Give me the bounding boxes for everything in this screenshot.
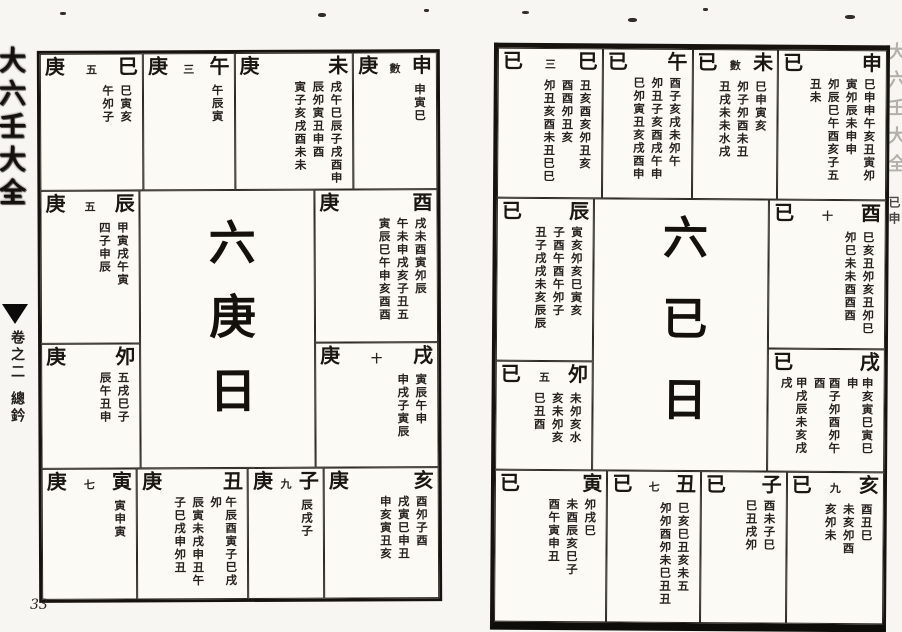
branch-character: 子: [299, 471, 319, 493]
cell-body: 申寅巳: [354, 80, 436, 188]
branch-text-column: 甲戌辰未亥戌戌: [777, 377, 808, 468]
stem-character: 庚: [320, 345, 340, 367]
branch-character: 寅: [582, 473, 602, 495]
branch-text-column: 寅亥夘亥巳寅亥: [567, 226, 583, 357]
branch-text-column: 申戌子寅辰: [394, 373, 409, 463]
branch-text-column: 辰戌子: [298, 499, 313, 595]
branch-character: 亥: [414, 470, 434, 492]
round-number-note: 九: [280, 474, 291, 496]
stem-character: 庚: [358, 55, 378, 77]
branch-text-column: 巳丑戌夘: [742, 499, 758, 619]
cell-shen: 已申巳申申午亥丑寅夘寅夘辰未申申夘辰巳午酉亥子五丑未: [777, 50, 887, 201]
cell-head: 庚酉: [315, 190, 436, 215]
branch-text-column: 子巳戌申夘丑: [171, 496, 186, 595]
cell-yin: 已寅夘戌巳未酉辰亥巳子酉午寅申丑: [494, 470, 608, 623]
cell-body: 巳亥巳丑亥未五夘夘酉夘未巳丑丑: [608, 498, 700, 622]
branch-text-column: 未亥夘酉: [839, 503, 855, 620]
stem-character: 已: [502, 201, 522, 223]
stem-character: 庚: [148, 56, 168, 78]
round-number-note: 三: [183, 59, 194, 81]
branch-text-column: 午夘子: [99, 85, 114, 187]
right-page-bottom-row: 已寅夘戌巳未酉辰亥巳子酉午寅申丑 已七丑巳亥巳丑亥未五夘夘酉夘未巳丑丑 已子酉未…: [494, 470, 884, 625]
branch-text-column: 巳亥巳丑亥未五: [674, 502, 690, 619]
branch-text-column: 申亥寅丑亥: [377, 495, 392, 594]
ink-speck: [424, 9, 429, 12]
cell-head: 庚丑: [138, 469, 247, 493]
cell-head: 庚三午: [144, 54, 234, 81]
stem-character: 已: [774, 203, 794, 225]
branch-text-column: 五戌巳子: [114, 371, 129, 464]
cell-head: 庚十戌: [316, 343, 437, 371]
cell-head: 庚夘: [42, 344, 139, 368]
branch-character: 酉: [861, 203, 881, 225]
cell-body: 巳寅亥午夘子: [41, 81, 143, 189]
stem-character: 已: [612, 473, 632, 495]
stem-character: 庚: [142, 471, 162, 493]
cell-body: 五戌巳子辰午丑申: [42, 368, 140, 468]
branch-character: 午: [209, 56, 229, 78]
left-page-center-cell: 六庚日: [140, 190, 316, 469]
branch-character: 亥: [859, 475, 879, 497]
stem-character: 庚: [329, 471, 349, 493]
branch-text-column: 辰午丑申: [96, 371, 111, 464]
right-page-middle-band: 已辰寅亥夘亥巳寅亥子酉午酉午夘子丑子戌戌未亥辰辰 已五夘未夘亥水亥未夘亥巳丑酉 …: [495, 198, 886, 473]
spine-volume: 卷之二: [6, 330, 26, 381]
stem-character: 已: [783, 53, 803, 75]
cell-head: 庚五巳: [41, 54, 142, 81]
branch-character: 辰: [115, 193, 135, 215]
branch-character: 戌: [860, 353, 880, 375]
cell-mao: 已五夘未夘亥水亥未夘亥巳丑酉: [495, 360, 593, 470]
ink-speck: [628, 18, 637, 22]
branch-text-column: 未夘亥水: [566, 392, 582, 466]
round-number-note: 三: [545, 54, 556, 76]
stem-character: 已: [697, 52, 717, 74]
page-number: 33: [30, 597, 48, 613]
branch-text-column: 酉午寅申丑: [545, 498, 561, 618]
edge-faint-text: 大六壬大全: [883, 42, 902, 182]
cell-head: 庚九子: [249, 469, 323, 496]
cell-head: 已午: [604, 49, 692, 74]
branch-text-column: 戌未酉寅夘辰: [412, 217, 428, 338]
cell-head: 已三巳: [499, 49, 602, 77]
cell-body: 甲寅戌午寅四子申辰: [42, 218, 140, 342]
branch-character: 丑: [676, 474, 696, 496]
branch-text-column: 酉子亥戌未夘午: [665, 77, 681, 195]
cell-head: 庚七寅: [43, 469, 136, 496]
cell-head: 庚未: [235, 54, 352, 79]
round-number-note: 五: [85, 197, 96, 219]
right-page-top-row: 已三巳丑亥酉亥夘丑亥酉酉夘丑亥夘丑亥酉未丑巳巳 已午酉子亥戌未夘午夘丑子亥酉戌午…: [497, 48, 887, 201]
cell-si: 已三巳丑亥酉亥夘丑亥酉酉夘丑亥夘丑亥酉未丑巳巳: [497, 48, 603, 199]
cell-body: 巳申寅亥夘子夘酉未丑丑戌未未水戌: [692, 77, 777, 199]
branch-character: 夘: [115, 346, 135, 368]
cell-wei: 已數未巳申寅亥夘子夘酉未丑丑戌未未水戌: [691, 49, 778, 200]
stem-character: 已: [773, 352, 793, 374]
cell-body: 戌未酉寅夘辰午未申戌亥子丑五寅辰巳午申亥酉酉: [315, 214, 437, 341]
cell-xu: 庚十戌寅辰午申申戌子寅辰: [315, 342, 439, 468]
cell-body: 巳申申午亥丑寅夘寅夘辰未申申夘辰巳午酉亥子五丑未: [778, 75, 886, 200]
left-page-right-column: 庚酉戌未酉寅夘辰午未申戌亥子丑五寅辰巳午申亥酉酉 庚十戌寅辰午申申戌子寅辰: [314, 189, 438, 468]
stem-character: 庚: [319, 193, 339, 215]
cell-head: 已五夘: [497, 361, 592, 389]
left-page-middle-band: 庚五辰甲寅戌午寅四子申辰 庚夘五戌巳子辰午丑申 六庚日 庚酉戌未酉寅夘辰午未申戌…: [40, 189, 438, 469]
cell-body: 丑亥酉亥夘丑亥酉酉夘丑亥夘丑亥酉未丑巳巳: [498, 76, 602, 198]
branch-text-column: 夘子夘酉未丑: [733, 80, 749, 195]
branch-text-column: 辰夘寅丑申酉: [309, 81, 324, 186]
branch-text-column: 甲寅戌午寅: [114, 221, 130, 339]
cell-head: 已數未: [693, 50, 777, 78]
stem-character: 庚: [47, 472, 67, 494]
ink-speck: [318, 13, 326, 17]
round-number-note: 七: [649, 477, 660, 499]
cell-body: 酉未子巳巳丑戌夘: [701, 496, 786, 623]
stem-character: 已: [706, 474, 726, 496]
branch-character: 酉: [412, 192, 432, 214]
cell-body: 午辰寅: [144, 81, 234, 189]
book-scan: 大六壬大全 卷之二 總鈐 庚五巳巳寅亥午夘子 庚三午午辰寅 庚未戌午巳辰子戌酉申…: [0, 0, 902, 630]
branch-character: 午: [667, 52, 687, 74]
round-number-note: 十: [822, 206, 833, 228]
branch-text-column: 丑戌未未水戌: [715, 80, 731, 195]
round-number-note: 五: [539, 367, 550, 389]
right-page-right-column: 已十酉巳亥丑夘亥丑夘巳夘巳未未酉酉酉 已戌申亥寅巳寅巳申酉子夘酉夘午酉甲戌辰未亥…: [767, 200, 886, 473]
right-page-center-cell: 六已日: [592, 198, 769, 471]
branch-text-column: 巳夘寅丑亥戌酉申: [629, 77, 645, 195]
cell-hai: 已九亥酉丑巳未亥夘酉亥夘未: [786, 472, 884, 625]
branch-character: 戌: [413, 345, 433, 367]
branch-text-column: 申寅巳: [411, 83, 426, 185]
branch-character: 申: [412, 55, 432, 77]
branch-character: 巳: [578, 51, 598, 73]
cell-wu: 庚三午午辰寅: [143, 53, 235, 190]
branch-character: 丑: [223, 471, 243, 493]
cell-body: 辰戌子: [249, 496, 323, 598]
spine-section: 總鈐: [6, 391, 26, 425]
cell-head: 已七丑: [608, 471, 700, 499]
stem-character: 庚: [45, 194, 65, 216]
left-page-bottom-row: 庚七寅寅申寅 庚丑午辰酉寅子巳戌夘辰寅未戌申丑午子巳戌申夘丑 庚九子辰戌子 庚亥…: [42, 467, 440, 600]
branch-text-column: 寅辰午申: [412, 373, 427, 463]
cell-body: 未夘亥水亥未夘亥巳丑酉: [496, 388, 592, 469]
stem-character: 已: [503, 51, 523, 73]
branch-text-column: 戌寅巳申丑: [395, 495, 410, 594]
edge-dark-text: 已申: [886, 196, 902, 228]
branch-text-column: 亥未夘亥: [548, 392, 564, 466]
branch-text-column: 酉丑巳: [857, 503, 873, 620]
branch-text-column: 夘丑子亥酉戌午申: [647, 77, 663, 195]
cell-you: 庚酉戌未酉寅夘辰午未申戌亥子丑五寅辰巳午申亥酉酉: [314, 189, 438, 342]
cell-chen: 已辰寅亥夘亥巳寅亥子酉午酉午夘子丑子戌戌未亥辰辰: [496, 198, 594, 361]
cell-head: 庚亥: [325, 468, 438, 492]
branch-text-column: 巳申寅亥: [751, 80, 767, 195]
branch-text-column: 未酉辰亥巳子: [563, 498, 579, 618]
cell-body: 酉夘子酉戌寅巳申丑申亥寅丑亥: [325, 492, 438, 597]
branch-text-column: 夘夘酉夘未巳丑丑: [656, 502, 672, 619]
left-page: 庚五巳巳寅亥午夘子 庚三午午辰寅 庚未戌午巳辰子戌酉申辰夘寅丑申酉寅子亥戌酉未未…: [37, 49, 442, 603]
round-number-note: 十: [371, 348, 382, 370]
branch-text-column: 辰寅未戌申丑午: [189, 496, 204, 595]
branch-character: 未: [328, 56, 348, 78]
ink-speck: [522, 11, 529, 14]
branch-text-column: 巳亥丑夘亥丑夘巳: [859, 231, 875, 346]
round-number-note: 五: [86, 60, 97, 82]
branch-character: 子: [762, 475, 782, 497]
branch-text-column: 酉未子巳: [760, 499, 776, 619]
cell-head: 已十酉: [770, 201, 885, 229]
cell-head: 已申: [779, 51, 886, 76]
spine-title: 大六壬大全: [0, 46, 30, 296]
ink-speck: [60, 12, 66, 15]
cell-shen: 庚數申申寅巳: [353, 52, 437, 189]
branch-text-column: 寅辰巳午申亥酉酉: [376, 217, 392, 338]
branch-character: 寅: [112, 471, 132, 493]
branch-text-column: 午辰酉寅子巳戌夘: [207, 496, 237, 595]
round-number-note: 數: [389, 58, 400, 80]
branch-text-column: 四子申辰: [96, 222, 112, 340]
branch-text-column: 寅申寅: [111, 499, 126, 595]
ink-speck: [703, 8, 708, 11]
cell-chou: 已七丑巳亥巳丑亥未五夘夘酉夘未巳丑丑: [606, 470, 700, 623]
branch-text-column: 夘戌巳: [581, 498, 597, 618]
cell-head: 已寅: [496, 471, 607, 496]
stem-character: 已: [608, 51, 628, 73]
cell-chen: 庚五辰甲寅戌午寅四子申辰: [40, 190, 140, 343]
stem-character: 庚: [253, 471, 273, 493]
branch-text-column: 午未申戌亥子丑五: [394, 217, 410, 338]
branch-text-column: 寅子亥戌酉未未: [291, 81, 306, 186]
cell-head: 庚數申: [354, 53, 436, 80]
stem-character: 已: [792, 475, 812, 497]
cell-zi: 庚九子辰戌子: [248, 468, 324, 599]
edge-bleed-strip: 大六壬大全 已申: [881, 42, 902, 612]
branch-character: 申: [862, 53, 882, 75]
stem-character: 已: [500, 473, 520, 495]
stem-character: 庚: [46, 346, 66, 368]
branch-text-column: 夘辰巳午酉亥子五: [824, 78, 840, 196]
cell-body: 寅亥夘亥巳寅亥子酉午酉午夘子丑子戌戌未亥辰辰: [497, 223, 593, 360]
branch-character: 巳: [118, 56, 138, 78]
cell-wei: 庚未戌午巳辰子戌酉申辰夘寅丑申酉寅子亥戌酉未未: [234, 53, 353, 191]
stem-character: 庚: [45, 57, 65, 79]
branch-text-column: 寅夘辰未申申: [842, 78, 858, 196]
cell-body: 巳亥丑夘亥丑夘巳夘巳未未酉酉酉: [769, 228, 885, 349]
cell-hai: 庚亥酉夘子酉戌寅巳申丑申亥寅丑亥: [324, 467, 439, 598]
cell-mao: 庚夘五戌巳子辰午丑申: [41, 343, 141, 469]
branch-text-column: 酉酉夘丑亥: [558, 79, 574, 194]
branch-text-column: 夘丑亥酉未丑巳巳: [540, 79, 556, 194]
left-page-left-column: 庚五辰甲寅戌午寅四子申辰 庚夘五戌巳子辰午丑申: [40, 190, 140, 468]
cell-body: 夘戌巳未酉辰亥巳子酉午寅申丑: [495, 495, 606, 622]
branch-text-column: 酉子夘酉夘午酉: [810, 377, 841, 468]
left-page-top-row: 庚五巳巳寅亥午夘子 庚三午午辰寅 庚未戌午巳辰子戌酉申辰夘寅丑申酉寅子亥戌酉未未…: [40, 52, 438, 191]
branch-character: 辰: [569, 201, 589, 223]
branch-text-column: 巳丑酉: [530, 392, 546, 466]
stem-character: 已: [501, 363, 521, 385]
right-page-left-column: 已辰寅亥夘亥巳寅亥子酉午酉午夘子丑子戌戌未亥辰辰 已五夘未夘亥水亥未夘亥巳丑酉: [495, 198, 594, 471]
branch-text-column: 酉夘子酉: [413, 495, 428, 594]
cell-body: 午辰酉寅子巳戌夘辰寅未戌申丑午子巳戌申夘丑: [138, 493, 247, 598]
stem-character: 庚: [239, 56, 259, 78]
cell-yin: 庚七寅寅申寅: [42, 468, 138, 599]
cell-si: 庚五巳巳寅亥午夘子: [40, 53, 144, 190]
branch-character: 未: [753, 52, 773, 74]
cell-head: 已子: [702, 472, 786, 497]
cell-body: 寅辰午申申戌子寅辰: [316, 370, 437, 467]
spine-strip: 大六壬大全 卷之二 總鈐: [0, 40, 37, 605]
cell-body: 寅申寅: [43, 496, 137, 598]
cell-head: 已九亥: [788, 473, 883, 501]
round-number-note: 七: [84, 475, 95, 497]
round-number-note: 九: [830, 478, 841, 500]
cell-body: 酉子亥戌未夘午夘丑子亥酉戌午申巳夘寅丑亥戌酉申: [603, 73, 691, 198]
right-page: 已三巳丑亥酉亥夘丑亥酉酉夘丑亥夘丑亥酉未丑巳巳 已午酉子亥戌未夘午夘丑子亥酉戌午…: [490, 43, 890, 632]
cell-body: 戌午巳辰子戌酉申辰夘寅丑申酉寅子亥戌酉未未: [236, 78, 353, 190]
cell-chou: 庚丑午辰酉寅子巳戌夘辰寅未戌申丑午子巳戌申夘丑: [137, 468, 248, 599]
cell-head: 已戌: [769, 350, 884, 375]
branch-character: 夘: [568, 364, 588, 386]
round-number-note: 數: [730, 55, 741, 77]
cell-body: 申亥寅巳寅巳申酉子夘酉夘午酉甲戌辰未亥戌戌: [768, 374, 883, 471]
cell-head: 庚五辰: [41, 191, 138, 218]
fishtail-mark-icon: [2, 304, 28, 324]
cell-wu: 已午酉子亥戌未夘午夘丑子亥酉戌午申巳夘寅丑亥戌酉申: [602, 48, 693, 199]
branch-text-column: 丑未: [806, 78, 822, 196]
branch-text-column: 丑亥酉亥夘丑亥: [576, 79, 592, 194]
branch-text-column: 申亥寅巳寅巳申: [843, 377, 874, 468]
branch-text-column: 戌午巳辰子戌酉申: [327, 81, 342, 186]
cell-body: 酉丑巳未亥夘酉亥夘未: [787, 500, 883, 624]
branch-text-column: 子酉午酉午夘子: [549, 226, 565, 357]
branch-text-column: 午辰寅: [209, 84, 224, 186]
branch-text-column: 巳寅亥: [117, 84, 132, 186]
branch-text-column: 亥夘未: [821, 503, 837, 620]
cell-you: 已十酉巳亥丑夘亥丑夘巳夘巳未未酉酉酉: [768, 200, 886, 350]
branch-text-column: 夘巳未未酉酉酉: [841, 231, 857, 346]
right-page-title: 六已日: [647, 213, 714, 456]
cell-head: 已辰: [498, 199, 593, 224]
branch-text-column: 丑子戌戌未亥辰辰: [531, 226, 547, 357]
cell-zi: 已子酉未子巳巳丑戌夘: [700, 471, 787, 624]
left-page-title: 六庚日: [193, 218, 263, 440]
cell-xu: 已戌申亥寅巳寅巳申酉子夘酉夘午酉甲戌辰未亥戌戌: [767, 349, 885, 472]
branch-text-column: 巳申申午亥丑寅夘: [860, 78, 876, 196]
ink-speck: [845, 15, 855, 19]
